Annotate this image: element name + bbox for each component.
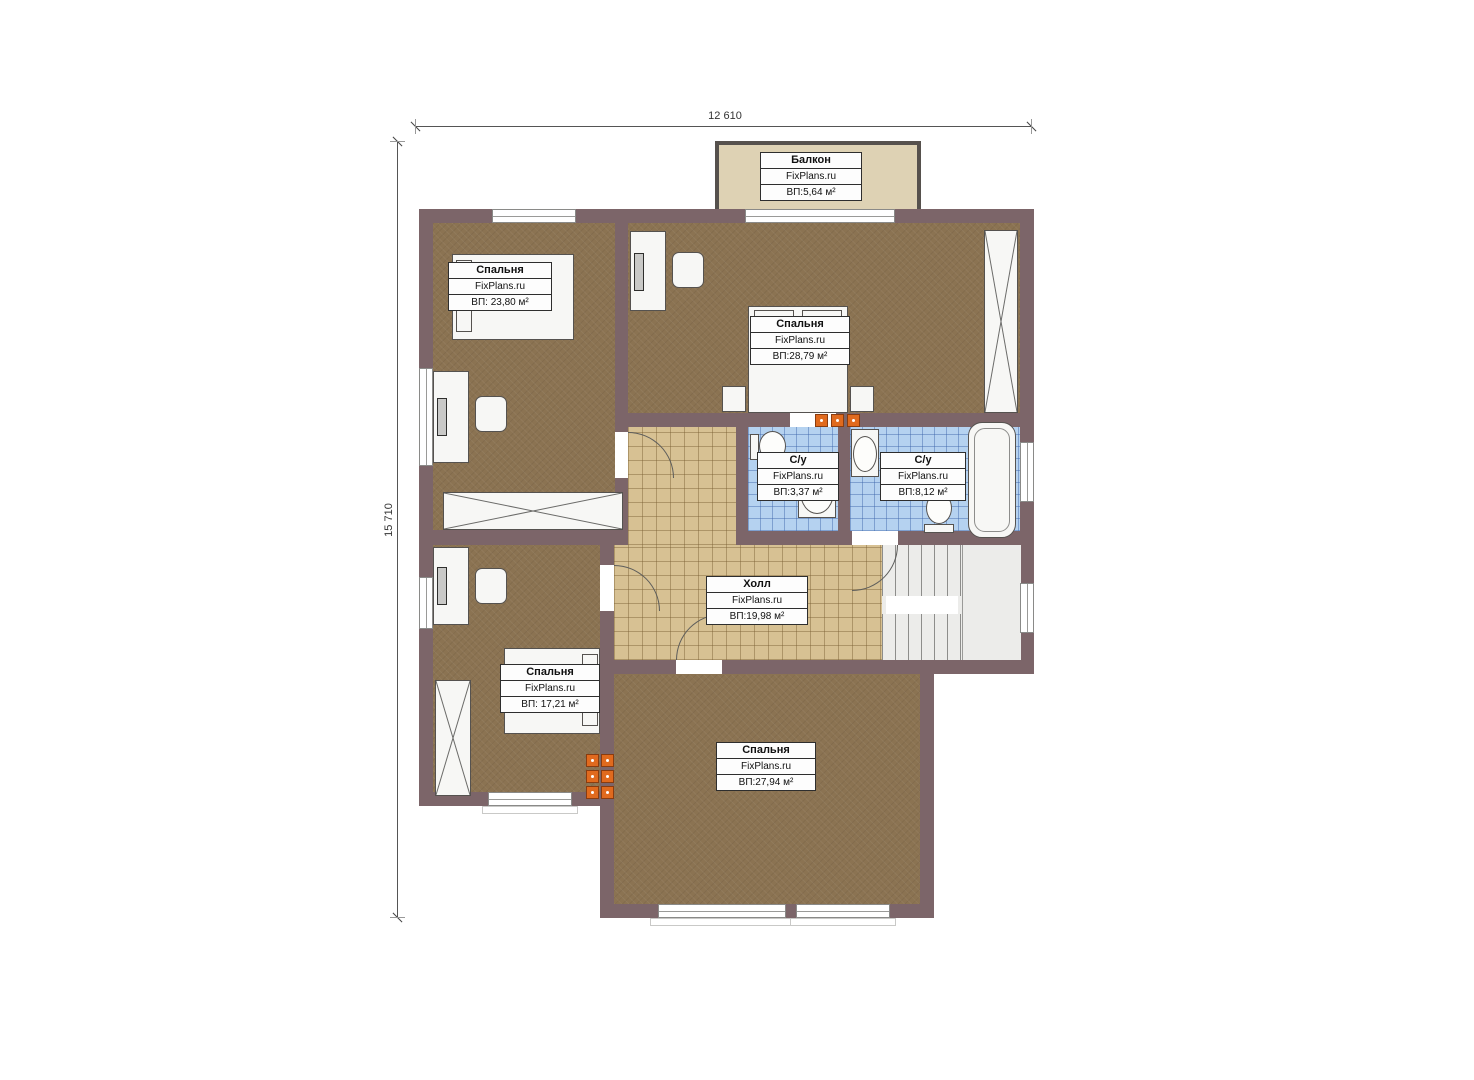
nightstand <box>722 386 746 412</box>
boiler-icon <box>586 770 599 783</box>
room-brand: FixPlans.ru <box>881 469 965 484</box>
door-opening <box>790 413 836 427</box>
wardrobe-x-icon <box>444 493 622 529</box>
stair-landing <box>962 545 1021 660</box>
chair <box>672 252 704 288</box>
wall-bottom-bedroom-right <box>920 660 934 918</box>
dimension-extension <box>1031 119 1032 134</box>
dimension-line-top <box>415 126 1031 127</box>
wall-hall-bottom-right <box>722 660 1034 674</box>
room-label-hall: Холл FixPlans.ru ВП:19,98 м² <box>706 576 808 625</box>
room-name: Спальня <box>751 317 849 333</box>
wall-hall-bottom-left <box>614 660 676 674</box>
room-area: ВП:19,98 м² <box>707 608 807 624</box>
room-label-bedroom-top-right: Спальня FixPlans.ru ВП:28,79 м² <box>750 316 850 365</box>
wall-under-bath-left <box>748 531 852 545</box>
door-opening <box>600 565 614 611</box>
room-area: ВП:5,64 м² <box>761 184 861 200</box>
window-sill <box>482 806 578 814</box>
room-name: Спальня <box>717 743 815 759</box>
room-label-bath-big: С/у FixPlans.ru ВП:8,12 м² <box>880 452 966 501</box>
window <box>1020 442 1034 502</box>
window <box>419 368 433 466</box>
room-brand: FixPlans.ru <box>761 169 861 184</box>
window <box>796 904 890 918</box>
stair-break-line <box>886 596 958 614</box>
monitor-icon <box>437 398 447 436</box>
bathtub <box>968 422 1016 538</box>
room-name: С/у <box>758 453 838 469</box>
door-opening <box>676 660 722 674</box>
monitor-icon <box>437 567 447 605</box>
door-opening <box>615 432 628 478</box>
room-name: С/у <box>881 453 965 469</box>
room-name: Спальня <box>449 263 551 279</box>
dimension-line-left <box>397 141 398 918</box>
window-sill <box>650 918 794 926</box>
boiler-icon <box>586 754 599 767</box>
room-brand: FixPlans.ru <box>707 593 807 608</box>
dimension-extension <box>390 141 405 142</box>
room-brand: FixPlans.ru <box>758 469 838 484</box>
room-area: ВП:8,12 м² <box>881 484 965 500</box>
room-brand: FixPlans.ru <box>717 759 815 774</box>
chair <box>475 568 507 604</box>
room-area: ВП: 23,80 м² <box>449 294 551 310</box>
wall-divider-top-upper <box>615 223 628 432</box>
balcony-door <box>745 209 895 223</box>
room-area: ВП:27,94 м² <box>717 774 815 790</box>
window <box>1020 583 1034 633</box>
room-label-bedroom-bottom: Спальня FixPlans.ru ВП:27,94 м² <box>716 742 816 791</box>
bathtub-inner <box>974 428 1010 532</box>
window <box>419 577 433 629</box>
boiler-icon <box>601 786 614 799</box>
boiler-icon <box>586 786 599 799</box>
window <box>492 209 576 223</box>
wall-bath-divider <box>838 427 850 531</box>
room-name: Холл <box>707 577 807 593</box>
wall-mid-vertical-upper <box>600 545 614 565</box>
radiator-icon <box>815 414 828 427</box>
dimension-label-left: 15 710 <box>383 488 395 552</box>
boiler-icon <box>601 770 614 783</box>
wardrobe-x-icon <box>436 681 470 795</box>
nightstand <box>850 386 874 412</box>
window <box>488 792 572 806</box>
monitor-icon <box>634 253 644 291</box>
window-sill <box>790 918 896 926</box>
room-area: ВП: 17,21 м² <box>501 696 599 712</box>
room-brand: FixPlans.ru <box>751 333 849 348</box>
floor-plan: 12 610 15 710 <box>0 0 1474 1080</box>
wardrobe <box>984 230 1018 413</box>
room-name: Балкон <box>761 153 861 169</box>
sink-bowl <box>853 436 877 472</box>
wall-corridor-right <box>736 427 748 545</box>
room-name: Спальня <box>501 665 599 681</box>
dimension-extension <box>390 917 405 918</box>
radiator-icon <box>847 414 860 427</box>
wardrobe-x-icon <box>985 231 1017 412</box>
dimension-label-top: 12 610 <box>660 110 790 122</box>
room-area: ВП:3,37 м² <box>758 484 838 500</box>
stair-flight-lower <box>882 614 962 660</box>
radiator-icon <box>831 414 844 427</box>
window <box>658 904 786 918</box>
room-area: ВП:28,79 м² <box>751 348 849 364</box>
wall-left <box>419 209 433 806</box>
wardrobe <box>435 680 471 796</box>
room-brand: FixPlans.ru <box>501 681 599 696</box>
wall-between-left-bedrooms <box>419 530 628 545</box>
room-label-bedroom-mid-left: Спальня FixPlans.ru ВП: 17,21 м² <box>500 664 600 713</box>
wall-under-bedroom-tr-left <box>628 413 790 427</box>
boiler-icon <box>601 754 614 767</box>
room-brand: FixPlans.ru <box>449 279 551 294</box>
chair <box>475 396 507 432</box>
wardrobe <box>443 492 623 530</box>
dimension-extension <box>415 119 416 134</box>
toilet-tank <box>924 524 954 533</box>
room-label-bedroom-top-left: Спальня FixPlans.ru ВП: 23,80 м² <box>448 262 552 311</box>
room-label-bath-small: С/у FixPlans.ru ВП:3,37 м² <box>757 452 839 501</box>
room-label-balcony: Балкон FixPlans.ru ВП:5,64 м² <box>760 152 862 201</box>
door-opening <box>852 531 898 545</box>
